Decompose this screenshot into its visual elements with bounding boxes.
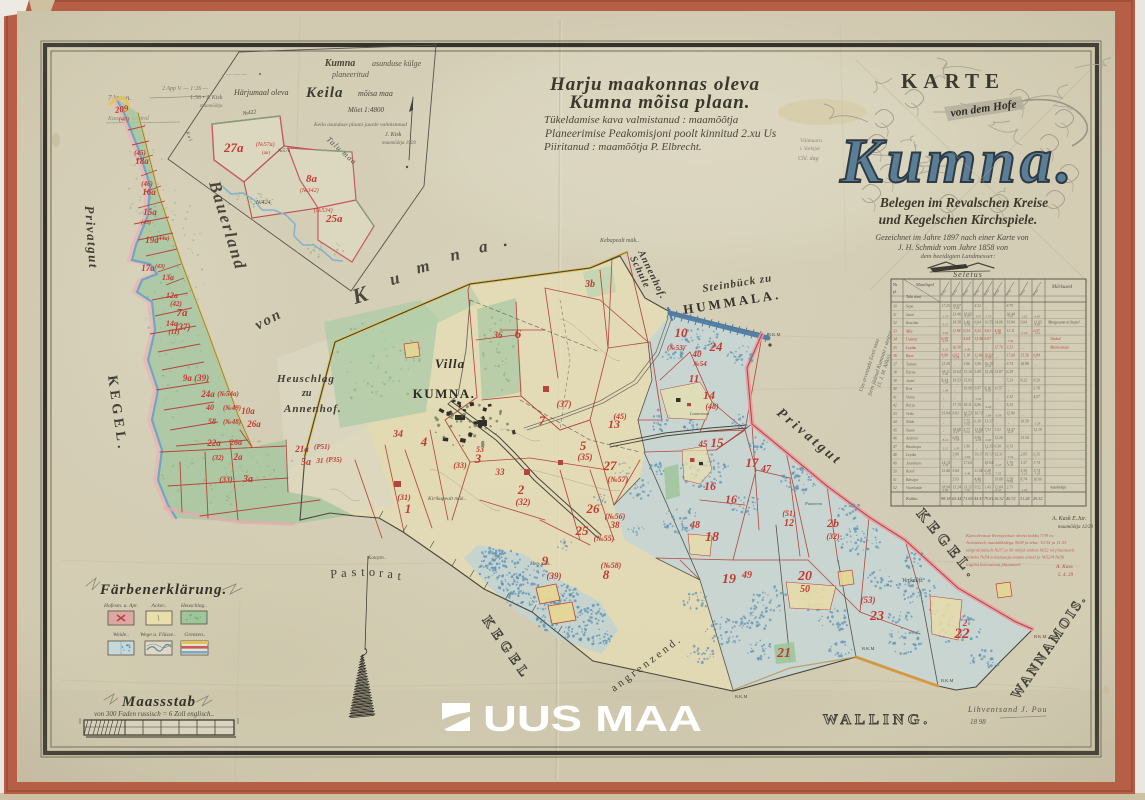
svg-text:UUS MAA: UUS MAA (483, 698, 702, 739)
